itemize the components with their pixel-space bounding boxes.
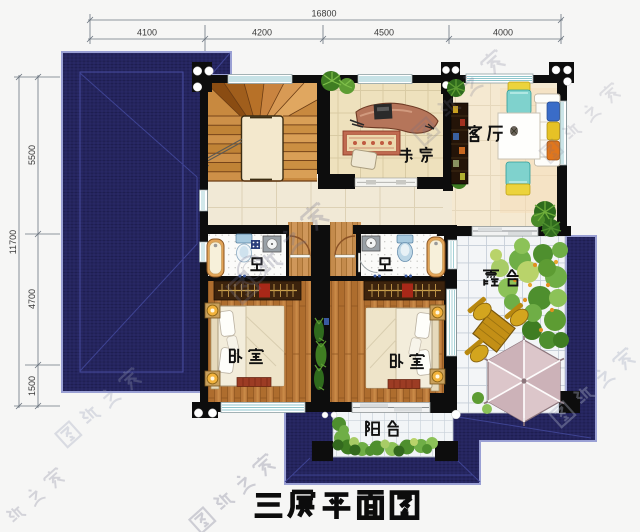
svg-text:4200: 4200 xyxy=(252,28,272,38)
svg-text:16800: 16800 xyxy=(311,9,336,19)
svg-text:11700: 11700 xyxy=(8,230,18,254)
svg-text:5500: 5500 xyxy=(27,145,37,165)
svg-text:4700: 4700 xyxy=(27,289,37,309)
svg-text:4100: 4100 xyxy=(137,28,157,38)
svg-text:4500: 4500 xyxy=(374,28,394,38)
svg-text:1500: 1500 xyxy=(27,376,37,396)
svg-text:4000: 4000 xyxy=(493,28,513,38)
